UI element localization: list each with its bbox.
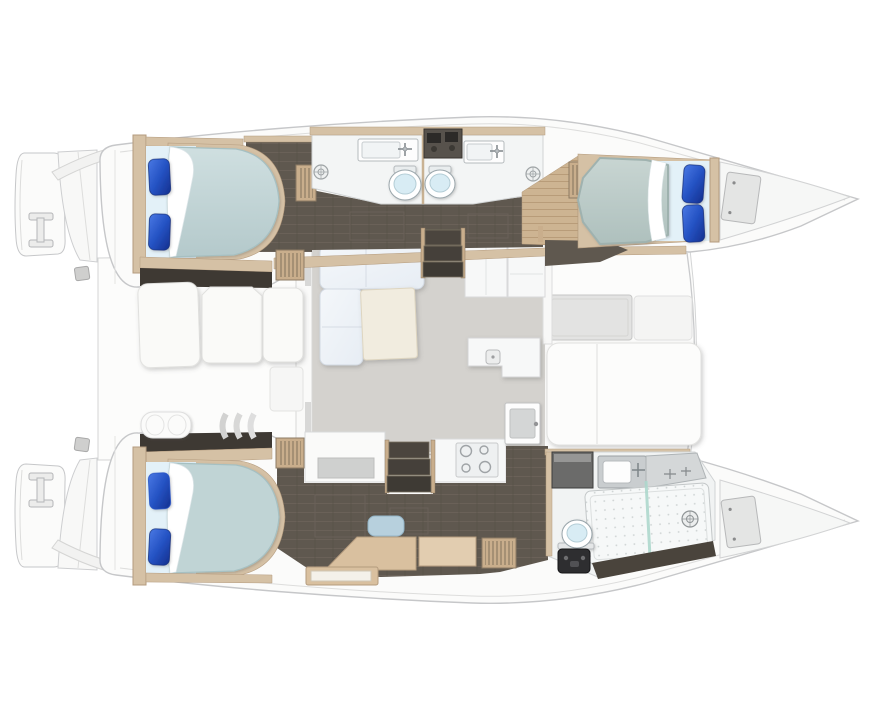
door-glass — [510, 409, 535, 438]
floor-plan — [0, 0, 870, 720]
louver-slats — [279, 253, 301, 277]
central-locker — [424, 129, 462, 158]
deck-panel — [634, 296, 692, 340]
sink-basin — [467, 144, 492, 160]
bed-foot-trim — [146, 573, 272, 583]
toilet-lid — [567, 524, 587, 542]
toilet — [425, 166, 455, 198]
step — [389, 442, 429, 458]
toilet-lid — [394, 174, 416, 194]
bathroom-sink — [598, 456, 646, 488]
cleat — [74, 266, 90, 281]
wood-trim — [546, 452, 552, 556]
step — [388, 459, 430, 475]
louver-slats — [299, 168, 313, 198]
pillow — [148, 158, 171, 195]
toilet — [389, 166, 421, 200]
foredeck — [547, 295, 701, 445]
pillow — [148, 214, 170, 251]
step — [423, 262, 463, 277]
toilet-base-unit — [558, 549, 590, 573]
step — [424, 246, 462, 261]
island-sink-drain — [491, 355, 494, 358]
cockpit-locker — [270, 367, 303, 411]
louver-closet — [482, 538, 516, 568]
shelf — [306, 567, 378, 585]
bed-frame — [133, 447, 146, 585]
desk-extension — [419, 537, 476, 566]
headboard-trim — [710, 158, 719, 242]
port-bathrooms — [310, 127, 545, 204]
cabinet-white — [305, 432, 385, 482]
cooktop — [456, 443, 498, 477]
shower-drain — [526, 167, 540, 181]
sofa-back-section — [320, 246, 424, 289]
faucet-icon — [403, 147, 407, 151]
port-aft-cabin — [133, 135, 285, 288]
coffee-table — [360, 288, 417, 360]
pillow — [682, 164, 706, 203]
starboard-hull-steps — [385, 440, 435, 493]
port-hull-steps — [421, 228, 465, 278]
vanity-cabinet — [552, 452, 593, 488]
bed-frame — [133, 135, 146, 273]
sink-basin — [603, 461, 631, 483]
pillow — [682, 204, 705, 242]
starboard-aft-cabin — [133, 432, 285, 585]
sink-right — [464, 141, 504, 163]
cockpit-cushion — [202, 287, 262, 363]
cockpit-bench-seat — [141, 412, 191, 438]
sink-basin — [362, 142, 400, 158]
step — [425, 230, 461, 245]
louver-wardrobe — [276, 438, 304, 468]
cabinet-inset — [318, 458, 374, 478]
shower-drain — [314, 165, 328, 179]
sunpad — [547, 343, 701, 445]
deck-hatch — [548, 295, 632, 340]
foredeck-door — [505, 403, 540, 444]
cleat — [74, 437, 90, 452]
vanity-stool — [368, 516, 404, 536]
louver-slats — [279, 441, 301, 465]
door-handle — [534, 422, 538, 426]
bow-locker — [721, 172, 761, 224]
bow-locker — [721, 496, 761, 548]
faucet-icon — [495, 149, 499, 153]
shelf-inset — [311, 571, 371, 581]
step — [387, 476, 431, 492]
louver-slats — [485, 541, 513, 565]
sink-left — [358, 139, 418, 161]
pillow — [148, 472, 171, 509]
cockpit-cushion — [263, 288, 303, 362]
cockpit-cushion — [138, 282, 201, 368]
louver-wardrobe — [276, 250, 304, 280]
mast-step — [538, 226, 543, 242]
toilet-lid — [430, 174, 450, 192]
pillow — [148, 529, 171, 566]
shower-drain — [682, 511, 698, 527]
wood-trim — [244, 136, 312, 142]
